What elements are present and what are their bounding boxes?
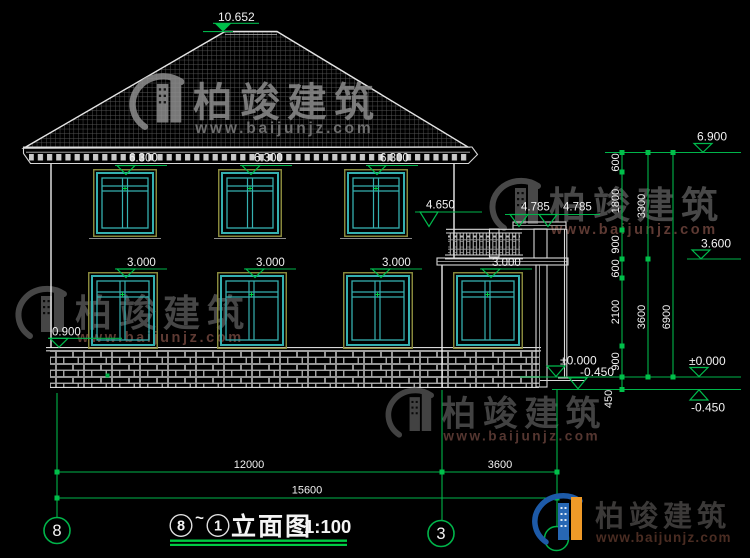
- level-value: 4.785: [563, 202, 592, 214]
- drawing-scale: 1:100: [304, 516, 351, 537]
- plinth: [46, 348, 541, 388]
- dim-value: 3600: [488, 459, 512, 471]
- level-value: -0.450: [691, 401, 725, 415]
- title-tilde: ~: [195, 510, 204, 527]
- dim-value: 600: [610, 153, 622, 171]
- level-value: 4.785: [521, 202, 550, 214]
- dim-value: 2100: [610, 300, 622, 324]
- title-underline: [170, 540, 347, 542]
- level-value: 0.900: [52, 327, 81, 339]
- drawing-title: 立面图: [231, 512, 312, 541]
- level-value: -0.450: [580, 365, 614, 379]
- grid-number: 3: [436, 525, 445, 543]
- dim-value: 12000: [234, 459, 265, 471]
- logo-site: www.baijunjz.com: [595, 530, 732, 545]
- dim-value: 450: [603, 390, 615, 408]
- level-value: 3.000: [256, 257, 285, 269]
- level-value: 3.000: [492, 257, 521, 269]
- dim-value: 600: [610, 259, 622, 277]
- level-value: 3.000: [127, 257, 156, 269]
- dim-value: 15600: [292, 485, 323, 497]
- level-value: 3.000: [382, 257, 411, 269]
- watermark-company: 柏竣建筑: [442, 393, 607, 433]
- title-underline-2: [170, 544, 347, 546]
- logo-tower-blue: [558, 503, 569, 540]
- balcony-balustrade: [448, 234, 520, 256]
- level-value: 6.900: [697, 130, 727, 144]
- title-grid-to: 1: [214, 519, 222, 535]
- level-value: 6.300: [380, 153, 409, 165]
- grid-bubble-8: 8: [44, 518, 70, 544]
- grid-number: 8: [52, 522, 61, 540]
- level-value: 6.300: [129, 153, 158, 165]
- dim-value: 3300: [636, 194, 648, 218]
- dim-value: 6900: [661, 305, 673, 329]
- grid-bubble-3: 3: [428, 521, 454, 547]
- stray-green-dot: [106, 374, 110, 378]
- brand-logo: 柏竣建筑 www.baijunjz.com: [535, 496, 732, 545]
- watermark-company: 柏竣建筑: [193, 81, 381, 125]
- watermark-site: www.baijunjz.com: [194, 120, 373, 137]
- watermark-site: www.baijunjz.com: [550, 222, 718, 238]
- watermark-site: www.baijunjz.com: [442, 428, 600, 443]
- logo-tower-orange: [571, 497, 582, 540]
- dim-value: 900: [610, 235, 622, 253]
- level-value: ±0.000: [689, 354, 726, 368]
- dim-value: 1800: [610, 189, 622, 213]
- level-value: 6.300: [254, 153, 283, 165]
- elevation-drawing: 柏竣建筑 www.baijunjz.com 柏竣建筑 www.baijunjz.…: [0, 0, 750, 558]
- level-value: 10.652: [218, 10, 255, 24]
- level-value: 3.600: [701, 237, 731, 251]
- title-grid-from: 8: [177, 519, 185, 535]
- level-value: 4.650: [426, 200, 455, 212]
- dim-value: 3600: [636, 305, 648, 329]
- watermark-company: 柏竣建筑: [75, 292, 251, 334]
- logo-company: 柏竣建筑: [595, 499, 731, 533]
